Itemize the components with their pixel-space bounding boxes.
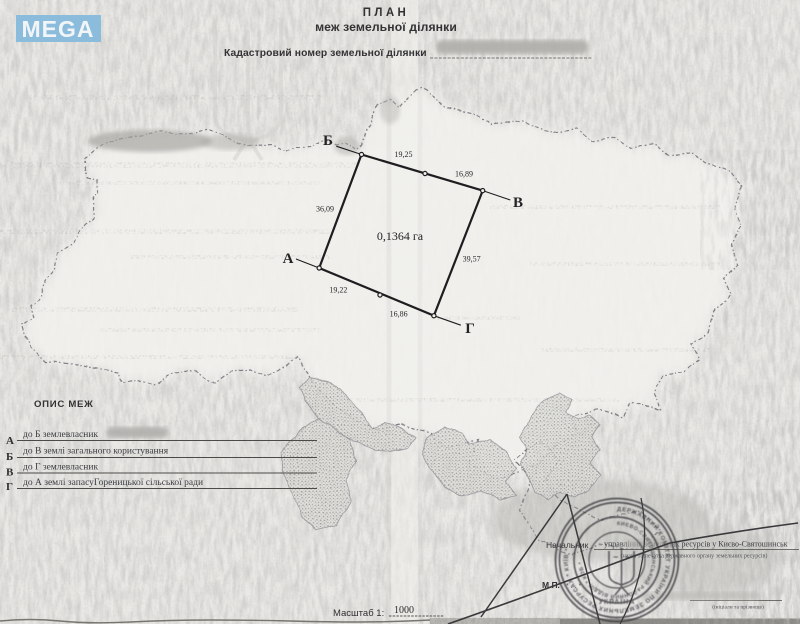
svg-text:Масштаб 1:: Масштаб 1: xyxy=(333,608,384,619)
svg-text:ПЛАН: ПЛАН xyxy=(363,7,410,19)
svg-text:16,89: 16,89 xyxy=(455,170,473,179)
svg-text:до В землі загального користу: до В землі загального користування xyxy=(23,447,169,457)
svg-text:0,1364 га: 0,1364 га xyxy=(377,229,424,243)
svg-text:36,09: 36,09 xyxy=(316,205,334,214)
svg-text:Г: Г xyxy=(465,321,475,337)
svg-text:А: А xyxy=(6,435,14,447)
svg-text:ОПИС МЕЖ: ОПИС МЕЖ xyxy=(34,399,94,410)
svg-text:до Г землевласник: до Г землевласник xyxy=(23,463,98,473)
svg-text:1000: 1000 xyxy=(394,605,414,616)
svg-text:Кадастровий номер земельної ді: Кадастровий номер земельної ділянки xyxy=(224,48,427,59)
svg-text:Б: Б xyxy=(323,133,333,149)
svg-text:до А землі запасуГореницької: до А землі запасуГореницької сільської р… xyxy=(23,478,203,488)
svg-text:меж земельної ділянки: меж земельної ділянки xyxy=(315,20,457,34)
svg-text:до Б землевласник: до Б землевласник xyxy=(23,430,98,440)
svg-text:MEGA: MEGA xyxy=(22,16,95,42)
svg-text:39,57: 39,57 xyxy=(463,255,481,264)
svg-text:19,22: 19,22 xyxy=(329,286,347,295)
svg-text:Г: Г xyxy=(6,481,13,493)
svg-text:19,25: 19,25 xyxy=(395,150,413,159)
svg-text:В: В xyxy=(513,195,523,211)
svg-text:(ініціали та прізвище): (ініціали та прізвище) xyxy=(712,604,764,611)
svg-text:16,86: 16,86 xyxy=(390,310,408,319)
svg-text:В: В xyxy=(6,467,14,479)
svg-text:А: А xyxy=(283,251,294,267)
svg-text:Б: Б xyxy=(6,451,13,463)
